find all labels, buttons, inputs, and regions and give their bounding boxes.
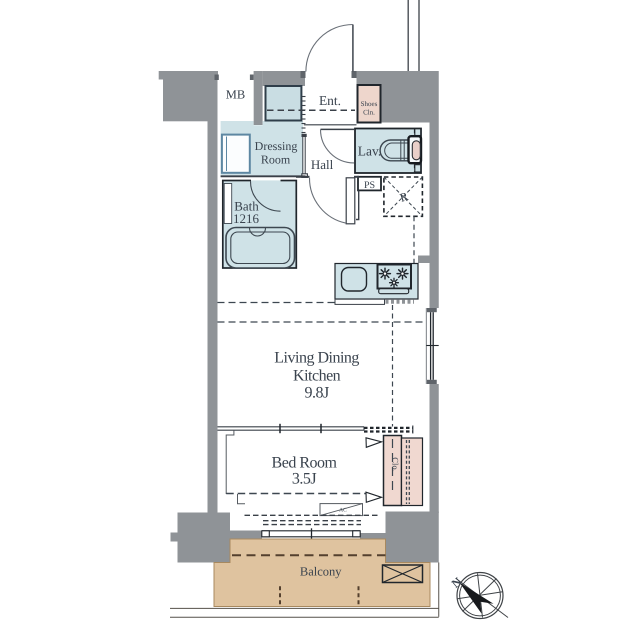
svg-text:Room: Room [261,153,291,167]
svg-text:Ent.: Ent. [319,93,341,108]
svg-text:Bed Room: Bed Room [272,455,338,472]
svg-text:PS: PS [364,180,375,191]
svg-text:Balcony: Balcony [300,565,342,579]
svg-text:Cln.: Cln. [363,109,375,117]
svg-text:Shoes: Shoes [361,100,378,108]
svg-text:Hall: Hall [311,157,334,172]
svg-text:Living Dining: Living Dining [274,350,359,367]
svg-text:9.8J: 9.8J [304,385,329,402]
svg-text:AC: AC [339,508,347,514]
svg-text:Lav.: Lav. [358,143,382,158]
svg-text:3.5J: 3.5J [292,471,317,488]
svg-text:MB: MB [226,87,245,101]
svg-text:1216: 1216 [233,211,260,226]
svg-text:Clo.: Clo. [391,457,401,471]
svg-text:Kitchen: Kitchen [293,368,341,385]
svg-text:Dressing: Dressing [255,139,298,153]
